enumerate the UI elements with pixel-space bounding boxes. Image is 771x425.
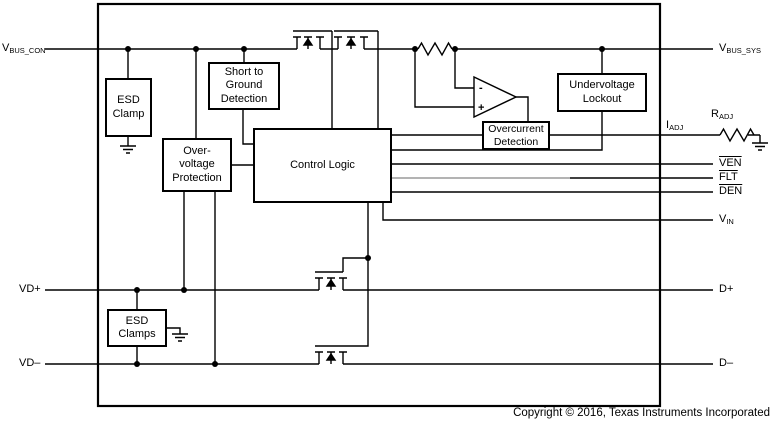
block-overcurrent-detection: Overcurrent Detection bbox=[482, 121, 550, 150]
junction-dots bbox=[125, 46, 605, 367]
mosfet-pass-fet-2 bbox=[334, 31, 378, 128]
pin-label-v-in: VIN bbox=[719, 213, 734, 228]
ground-icon bbox=[752, 143, 768, 150]
wire-data-gate-feed bbox=[315, 203, 368, 346]
ground-icon bbox=[172, 334, 188, 341]
pin-r-adj-sub: ADJ bbox=[719, 112, 733, 121]
opamp-minus-sign: - bbox=[479, 82, 483, 94]
pin-label-i-adj: IADJ bbox=[666, 119, 683, 134]
mosfet-dminus-switch bbox=[315, 352, 347, 364]
pin-ven-text: VEN bbox=[719, 157, 742, 169]
block-esd-clamps: ESD Clamps bbox=[107, 309, 167, 347]
diagram-wiring: - + bbox=[0, 0, 771, 425]
pin-den-text: DEN bbox=[719, 185, 742, 197]
block-esd-clamp: ESD Clamp bbox=[105, 78, 152, 137]
wire-iadj bbox=[392, 129, 768, 150]
pin-vbus-sys-sub: BUS_SYS bbox=[726, 46, 761, 55]
pin-label-vd-minus: VD– bbox=[19, 357, 40, 370]
mosfet-dplus-switch bbox=[315, 272, 347, 290]
wire-opamp bbox=[415, 49, 528, 121]
pin-label-r-adj: RADJ bbox=[711, 108, 733, 123]
pin-label-d-minus: D– bbox=[719, 357, 733, 370]
block-short-to-ground-detection: Short to Ground Detection bbox=[208, 62, 280, 110]
copyright-text: Copyright © 2016, Texas Instruments Inco… bbox=[420, 406, 770, 420]
pin-i-adj-sub: ADJ bbox=[669, 123, 683, 132]
pin-vbus-con-sub: BUS_CON bbox=[9, 46, 45, 55]
pin-label-flt: FLT bbox=[719, 171, 738, 184]
block-overvoltage-protection: Over- voltage Protection bbox=[162, 138, 232, 192]
functional-block-diagram: - + ESD Clamp Short to Ground Detection … bbox=[0, 0, 771, 425]
pin-label-vd-plus: VD+ bbox=[19, 283, 41, 296]
mosfet-pass-fet-1 bbox=[293, 31, 332, 128]
pin-v-in-sub: IN bbox=[726, 217, 734, 226]
chip-boundary bbox=[98, 4, 660, 406]
pin-label-den: DEN bbox=[719, 185, 742, 198]
block-control-logic: Control Logic bbox=[253, 128, 392, 203]
opamp-plus-sign: + bbox=[478, 102, 484, 114]
pin-label-vbus-con: VBUS_CON bbox=[2, 42, 46, 57]
pin-label-d-plus: D+ bbox=[719, 283, 733, 296]
ground-icon bbox=[120, 146, 136, 153]
pin-label-ven: VEN bbox=[719, 157, 742, 170]
pin-r-adj-main: R bbox=[711, 108, 719, 120]
wire-vin bbox=[383, 203, 713, 220]
pin-flt-text: FLT bbox=[719, 171, 738, 183]
block-undervoltage-lockout: Undervoltage Lockout bbox=[557, 73, 647, 112]
pin-label-vbus-sys: VBUS_SYS bbox=[719, 42, 761, 57]
sense-resistor-symbol bbox=[418, 43, 452, 55]
